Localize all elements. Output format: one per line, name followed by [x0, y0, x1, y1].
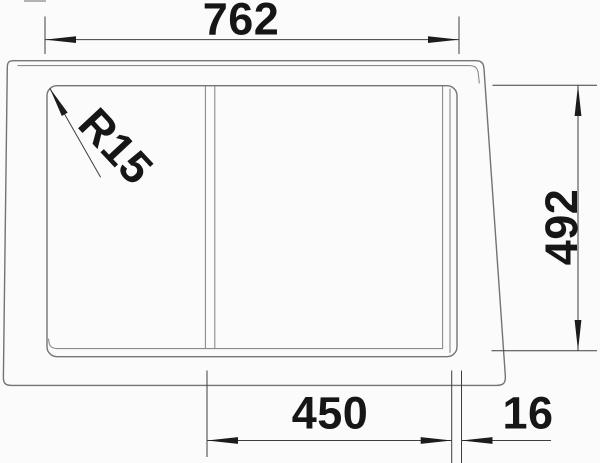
dimension-bowl-width: 450 [207, 371, 452, 463]
arrowhead-left [45, 36, 76, 43]
dimension-label-overall-width: 762 [203, 0, 280, 45]
sink-dimension-drawing: 762 492 450 16 [0, 0, 600, 463]
arrowhead-down [575, 320, 582, 351]
arrowhead-left [207, 437, 238, 444]
dimension-label-bowl-width: 450 [292, 388, 369, 439]
leader-arrowhead [50, 88, 68, 116]
arrowhead-right [421, 437, 452, 444]
rim-inner-edge [18, 66, 479, 83]
dimension-overall-depth: 492 [492, 85, 598, 351]
dimension-label-overall-depth: 492 [536, 189, 587, 266]
sink-outline-group [3, 61, 505, 386]
cropped-edge-artifact [24, 0, 46, 2]
radius-label: R15 [69, 98, 164, 194]
arrowhead-up [575, 85, 582, 116]
arrowhead-left [462, 437, 493, 444]
dimension-overall-width: 762 [45, 0, 459, 54]
sink-outer-contour [3, 61, 505, 386]
dimension-rim-offset: 16 [462, 371, 554, 463]
dimension-label-rim-offset: 16 [502, 388, 553, 439]
technical-drawing-page: 762 492 450 16 [0, 0, 600, 463]
bowl-bottom-inner-line [49, 339, 443, 349]
arrowhead-right [428, 36, 459, 43]
radius-callout: R15 [50, 88, 164, 194]
